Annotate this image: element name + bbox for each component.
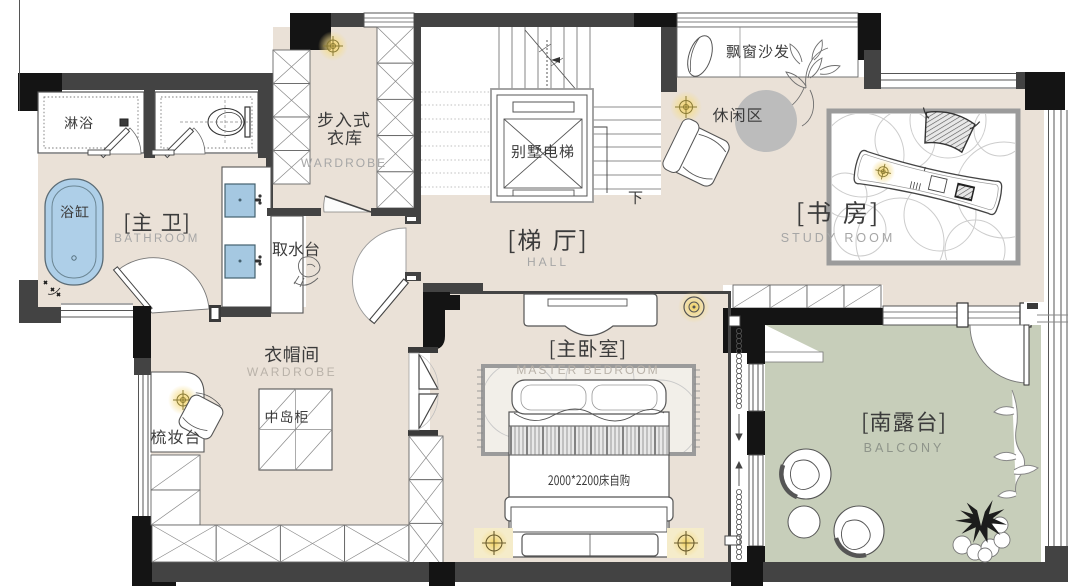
- svg-text:WARDROBE: WARDROBE: [247, 365, 337, 379]
- svg-text:HALL: HALL: [527, 255, 569, 269]
- svg-text:WARDROBE: WARDROBE: [301, 156, 387, 170]
- svg-text:MASTER BEDROOM: MASTER BEDROOM: [516, 363, 659, 377]
- svg-text:BALCONY: BALCONY: [864, 441, 945, 455]
- svg-text:BATHROOM: BATHROOM: [114, 233, 200, 245]
- svg-text:STUDY ROOM: STUDY ROOM: [781, 231, 896, 245]
